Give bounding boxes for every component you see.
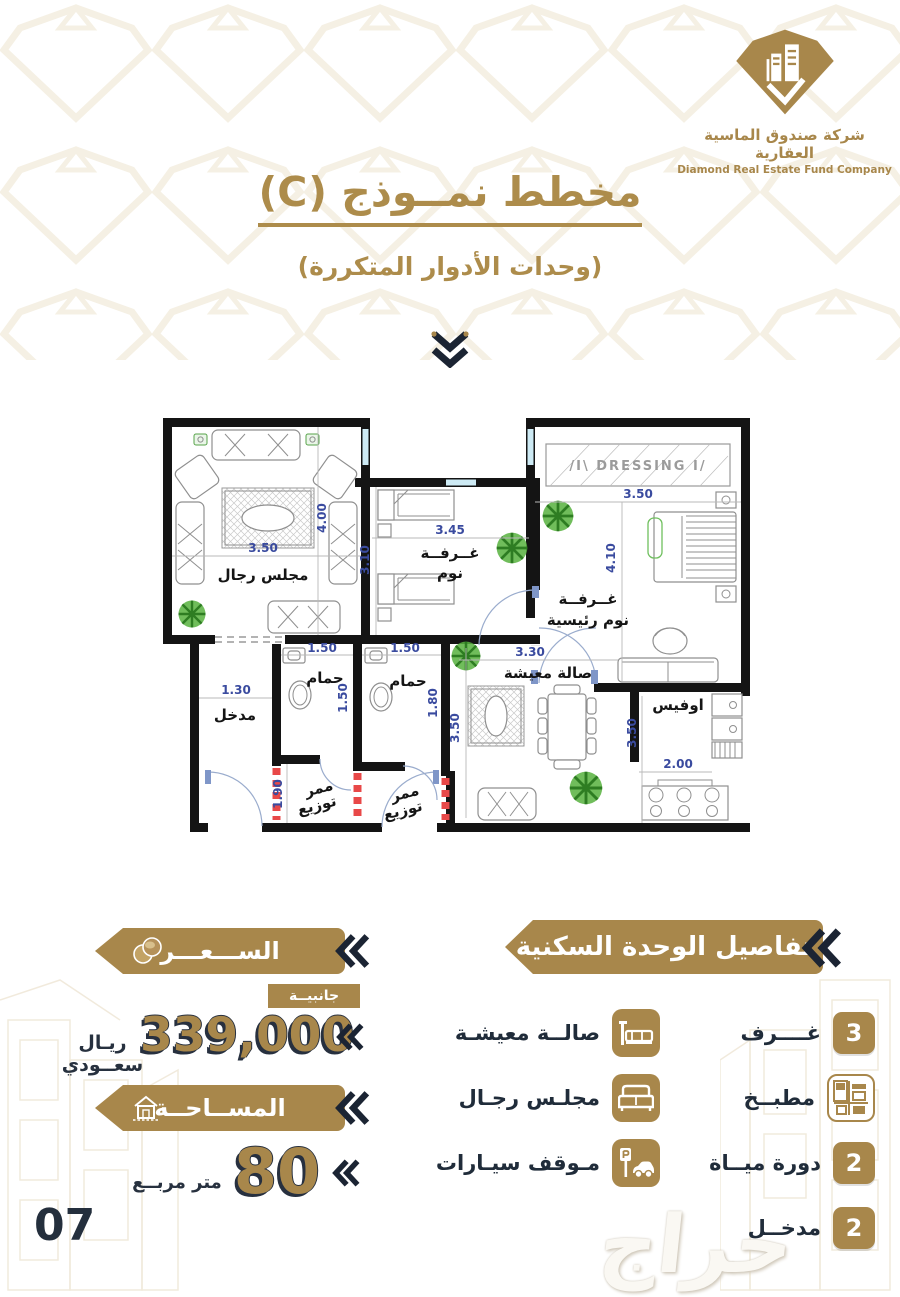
price-currency: ريـال سعــودي	[55, 1032, 150, 1076]
detail-item-parking: مـوقف سيـارات	[425, 1138, 660, 1188]
area-value: 80	[222, 1135, 332, 1208]
house-measure-icon	[131, 1093, 161, 1123]
area-banner: المســاحــة	[95, 1085, 345, 1131]
price-banner-label: الســـعـــر	[160, 937, 279, 965]
diamond-logo-icon	[729, 26, 841, 118]
svg-text:3.10: 3.10	[358, 545, 372, 575]
double-chevron-left-icon	[330, 1158, 360, 1188]
details-banner: تفاصيل الوحدة السكنية	[505, 920, 823, 974]
detail-item-living-room: صالــة معيشـة	[425, 1008, 660, 1058]
hall1-label-2: توزيع	[295, 792, 338, 819]
svg-text:1.50: 1.50	[336, 683, 350, 713]
svg-text:1.90: 1.90	[271, 779, 285, 809]
rooms-count-badge: 3	[833, 1012, 875, 1054]
company-logo: شركة صندوق الماسية العقارية Diamond Real…	[677, 26, 892, 176]
master-label-1: غــرفــة	[558, 590, 617, 608]
details-column-right: 3 غــــرف مطبــخ 2 دورة ميــاة	[640, 1008, 875, 1268]
area-unit: متر مربــع	[128, 1172, 226, 1193]
price-banner: الســـعـــر	[95, 928, 345, 974]
svg-text:3.50: 3.50	[448, 713, 462, 743]
entrances-count-badge: 2	[833, 1207, 875, 1249]
detail-item-entrances: 2 مدخــل	[640, 1203, 875, 1253]
coins-icon	[131, 937, 165, 965]
svg-text:1.80: 1.80	[426, 688, 440, 718]
company-name-arabic: شركة صندوق الماسية العقارية	[677, 126, 892, 162]
detail-item-majlis: مجلـس رجـال	[425, 1073, 660, 1123]
detail-item-kitchen: مطبــخ	[640, 1073, 875, 1123]
bath2-label: حمام	[389, 672, 427, 690]
double-chevron-left-icon	[332, 1089, 370, 1127]
double-chevron-down-icon	[428, 328, 472, 368]
plan-windows	[363, 429, 534, 486]
dressing-label: /I\ DRESSING I/	[569, 459, 706, 474]
master-furniture	[543, 492, 736, 682]
bedroom-label-1: غــرفــة	[420, 544, 479, 562]
svg-text:3.50: 3.50	[623, 487, 653, 501]
bath1-label: حمام	[306, 669, 344, 687]
living-label: صالة معيشة	[504, 664, 592, 682]
details-column-left: صالــة معيشـة مجلـس رجـال	[425, 1008, 660, 1203]
area-banner-label: المســاحــة	[154, 1094, 285, 1122]
svg-text:4.10: 4.10	[604, 543, 618, 573]
svg-text:3.30: 3.30	[515, 645, 545, 659]
svg-text:2.00: 2.00	[663, 757, 693, 771]
office-label: اوفيس	[652, 696, 704, 714]
hall2-label-2: توزيع	[381, 797, 424, 824]
detail-item-bathrooms: 2 دورة ميــاة	[640, 1138, 875, 1188]
bedroom-label-2: نوم	[437, 564, 463, 582]
svg-text:3.50: 3.50	[625, 718, 639, 748]
page-subtitle: (وحدات الأدوار المتكررة)	[0, 252, 900, 281]
svg-text:3.45: 3.45	[435, 523, 465, 537]
detail-item-rooms: 3 غــــرف	[640, 1008, 875, 1058]
majlis-furniture	[173, 430, 358, 633]
price-tag: جانبيــة	[268, 984, 360, 1008]
entrance-label: مدخل	[214, 706, 256, 724]
double-chevron-left-icon	[334, 1022, 364, 1052]
price-amount: 339,000	[140, 1008, 335, 1063]
floor-plan: /I\ DRESSING I/	[150, 398, 760, 848]
svg-text:3.50: 3.50	[248, 541, 278, 555]
daybed-icon	[612, 1009, 660, 1057]
page-number: 07	[34, 1200, 95, 1251]
dressing-area: /I\ DRESSING I/	[546, 444, 730, 486]
parking-icon	[612, 1139, 660, 1187]
flyer-page: شركة صندوق الماسية العقارية Diamond Real…	[0, 0, 900, 1297]
svg-text:1.50: 1.50	[307, 641, 337, 655]
page-title: مخطط نمــوذج (C)	[258, 168, 641, 227]
double-chevron-left-icon	[798, 926, 842, 970]
master-label-2: نوم رئيسية	[547, 611, 629, 629]
svg-text:4.00: 4.00	[315, 503, 329, 533]
svg-text:1.30: 1.30	[221, 683, 251, 697]
sofa-icon	[612, 1074, 660, 1122]
kitchen-icon	[827, 1074, 875, 1122]
svg-text:1.50: 1.50	[390, 641, 420, 655]
majlis-label: مجلس رجال	[218, 566, 309, 584]
bathrooms-count-badge: 2	[833, 1142, 875, 1184]
details-banner-label: تفاصيل الوحدة السكنية	[516, 932, 813, 962]
double-chevron-left-icon	[332, 932, 370, 970]
